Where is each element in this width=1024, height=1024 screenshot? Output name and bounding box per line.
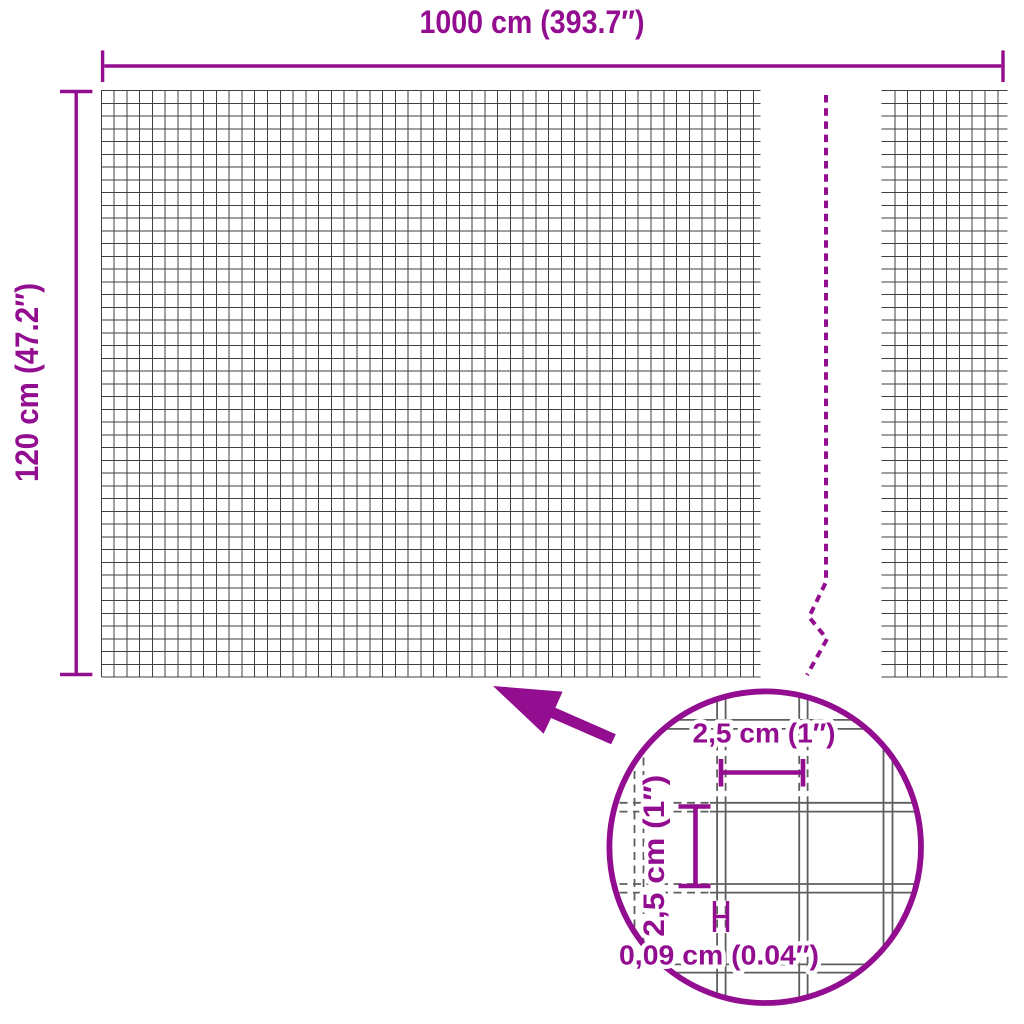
svg-text:0,09 cm (0.04″): 0,09 cm (0.04″) xyxy=(619,940,819,971)
svg-text:120 cm (47.2″): 120 cm (47.2″) xyxy=(9,283,45,482)
svg-text:2,5 cm (1″): 2,5 cm (1″) xyxy=(693,718,836,749)
svg-text:2,5 cm (1″): 2,5 cm (1″) xyxy=(638,775,671,937)
svg-text:1000 cm (393.7″): 1000 cm (393.7″) xyxy=(420,4,645,40)
